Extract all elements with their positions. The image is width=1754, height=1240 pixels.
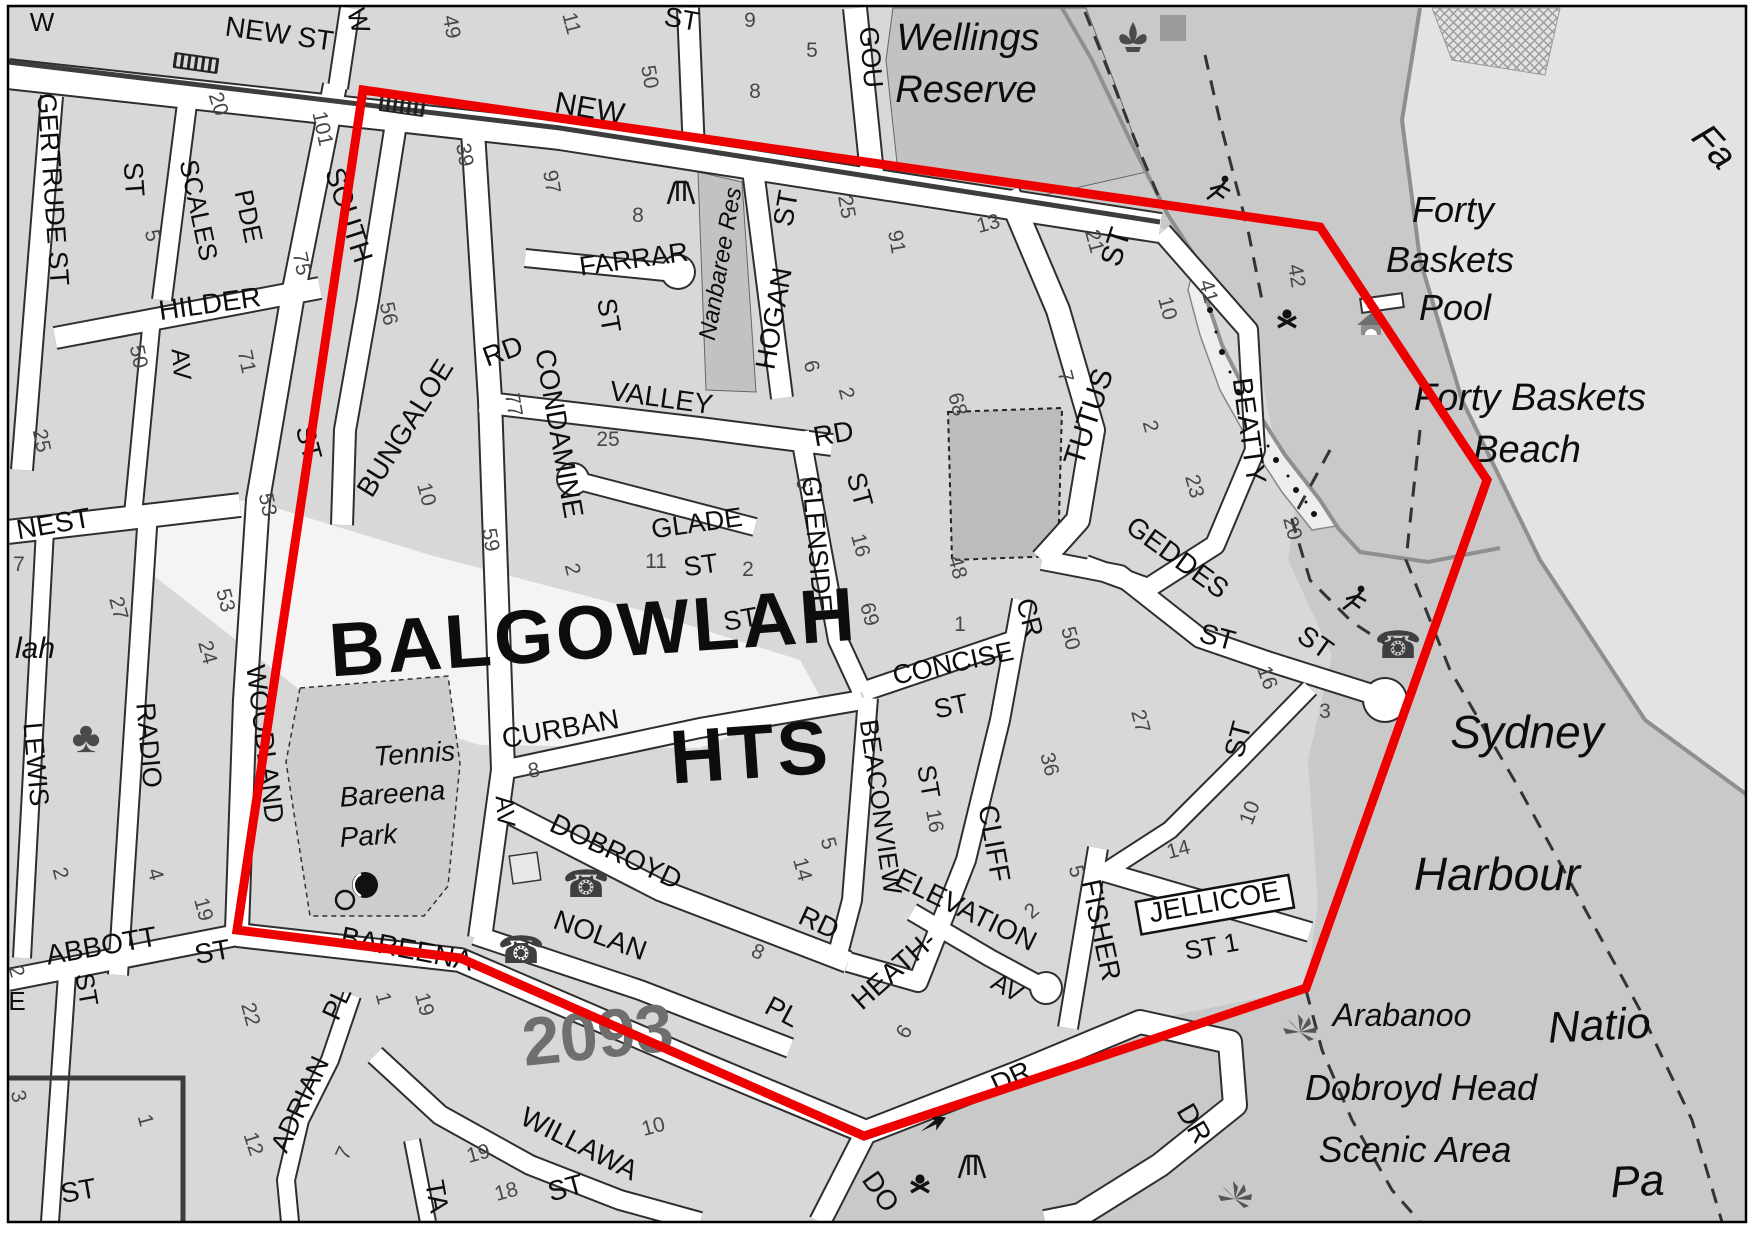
- map-label: 8: [749, 80, 761, 103]
- map-label: HTS: [667, 705, 834, 801]
- map-label: 8: [632, 204, 644, 227]
- map-label: 7: [13, 553, 25, 576]
- map-label: 71: [233, 348, 260, 376]
- map-label: AV: [166, 347, 197, 381]
- map-label: 16: [921, 807, 948, 834]
- map-label: 9: [744, 9, 756, 32]
- map-label: 49: [438, 13, 465, 40]
- svg-text:☎: ☎: [562, 864, 609, 906]
- beach-dot: [1311, 511, 1317, 517]
- beach-dot: [1207, 307, 1213, 313]
- svg-text:♣: ♣: [72, 713, 101, 762]
- map-label: Natio: [1547, 998, 1652, 1052]
- map-label: E: [8, 986, 25, 1016]
- map-label: ST: [69, 970, 104, 1008]
- map-label: Harbour: [1414, 848, 1582, 900]
- map-label: ST: [118, 161, 150, 198]
- map-label: 2093: [518, 989, 676, 1080]
- white-square-icon: [509, 852, 541, 884]
- map-label: Beach: [1473, 429, 1581, 471]
- map-label: 77: [500, 391, 527, 418]
- map-canvas[interactable]: ☎☎☎♣WNEW STWGERTRUDE STST201014911SCALES…: [0, 0, 1754, 1240]
- map-label: Pool: [1419, 287, 1492, 328]
- map-label: 75: [288, 250, 315, 278]
- map-label: 1: [954, 613, 966, 636]
- map-label: 5: [806, 39, 818, 62]
- map-label: AV: [490, 794, 521, 828]
- map-label: ST: [767, 188, 804, 229]
- phone-icon: ☎: [1374, 625, 1421, 667]
- map-layers: ☎☎☎♣WNEW STWGERTRUDE STST201014911SCALES…: [4, 1, 1754, 1222]
- map-label: 56: [375, 300, 402, 328]
- map-label: 11: [645, 550, 667, 573]
- map-label: 42: [1283, 262, 1310, 289]
- map-label: Forty Baskets: [1414, 377, 1646, 419]
- region-school-block: [948, 408, 1062, 560]
- map-label: Park: [339, 818, 401, 853]
- map-label: 25: [596, 428, 619, 451]
- map: ☎☎☎♣WNEW STWGERTRUDE STST201014911SCALES…: [0, 0, 1754, 1240]
- map-label: TA: [419, 1178, 454, 1215]
- map-label: ST: [682, 548, 720, 583]
- map-label: GOU: [853, 25, 888, 89]
- gray-square-icon: [1160, 15, 1186, 41]
- map-label: W: [30, 7, 55, 37]
- map-label: 25: [28, 427, 55, 455]
- map-label: Sydney: [1450, 706, 1606, 758]
- map-label: 59: [477, 526, 504, 553]
- map-label: Arabanoo: [1331, 997, 1472, 1033]
- svg-text:☎: ☎: [497, 930, 544, 972]
- map-label: 50: [636, 63, 663, 90]
- map-label: ST: [591, 296, 627, 335]
- map-label: 50: [125, 343, 152, 371]
- beach-dot: [1273, 457, 1279, 463]
- map-label: Forty: [1412, 189, 1496, 230]
- beach-dot: [1219, 349, 1225, 355]
- map-label: Baskets: [1386, 239, 1514, 280]
- map-label: Reserve: [895, 69, 1037, 111]
- culdesac-elevation-av: [1031, 973, 1061, 1003]
- map-label: ST: [192, 933, 233, 970]
- map-label: Pa: [1609, 1156, 1665, 1208]
- map-label: 97: [538, 168, 565, 195]
- beach-dot-small: [1305, 501, 1308, 504]
- map-label: Scenic Area: [1319, 1129, 1512, 1170]
- map-label: Dobroyd Head: [1305, 1067, 1538, 1108]
- map-label: 2: [742, 558, 754, 581]
- map-label: ST: [911, 762, 946, 800]
- svg-text:☎: ☎: [1374, 625, 1421, 667]
- map-label: ST: [58, 1172, 99, 1209]
- phone-icon: ☎: [497, 930, 544, 972]
- map-label: Wellings: [897, 17, 1040, 59]
- map-label: 25: [833, 193, 860, 220]
- phone-icon: ☎: [562, 864, 609, 906]
- map-label: lah: [15, 632, 55, 665]
- map-label: 39: [451, 141, 478, 168]
- map-label: 91: [883, 228, 910, 255]
- beach-dot: [1293, 487, 1299, 493]
- clover-icon: ♣: [72, 713, 101, 762]
- map-label: Tennis: [373, 735, 456, 772]
- map-label: 3: [1319, 700, 1331, 723]
- beach-dot-small: [1215, 331, 1218, 334]
- map-label: 53: [254, 491, 281, 519]
- beach-dot-small: [1229, 371, 1232, 374]
- beach-dot-small: [1287, 475, 1290, 478]
